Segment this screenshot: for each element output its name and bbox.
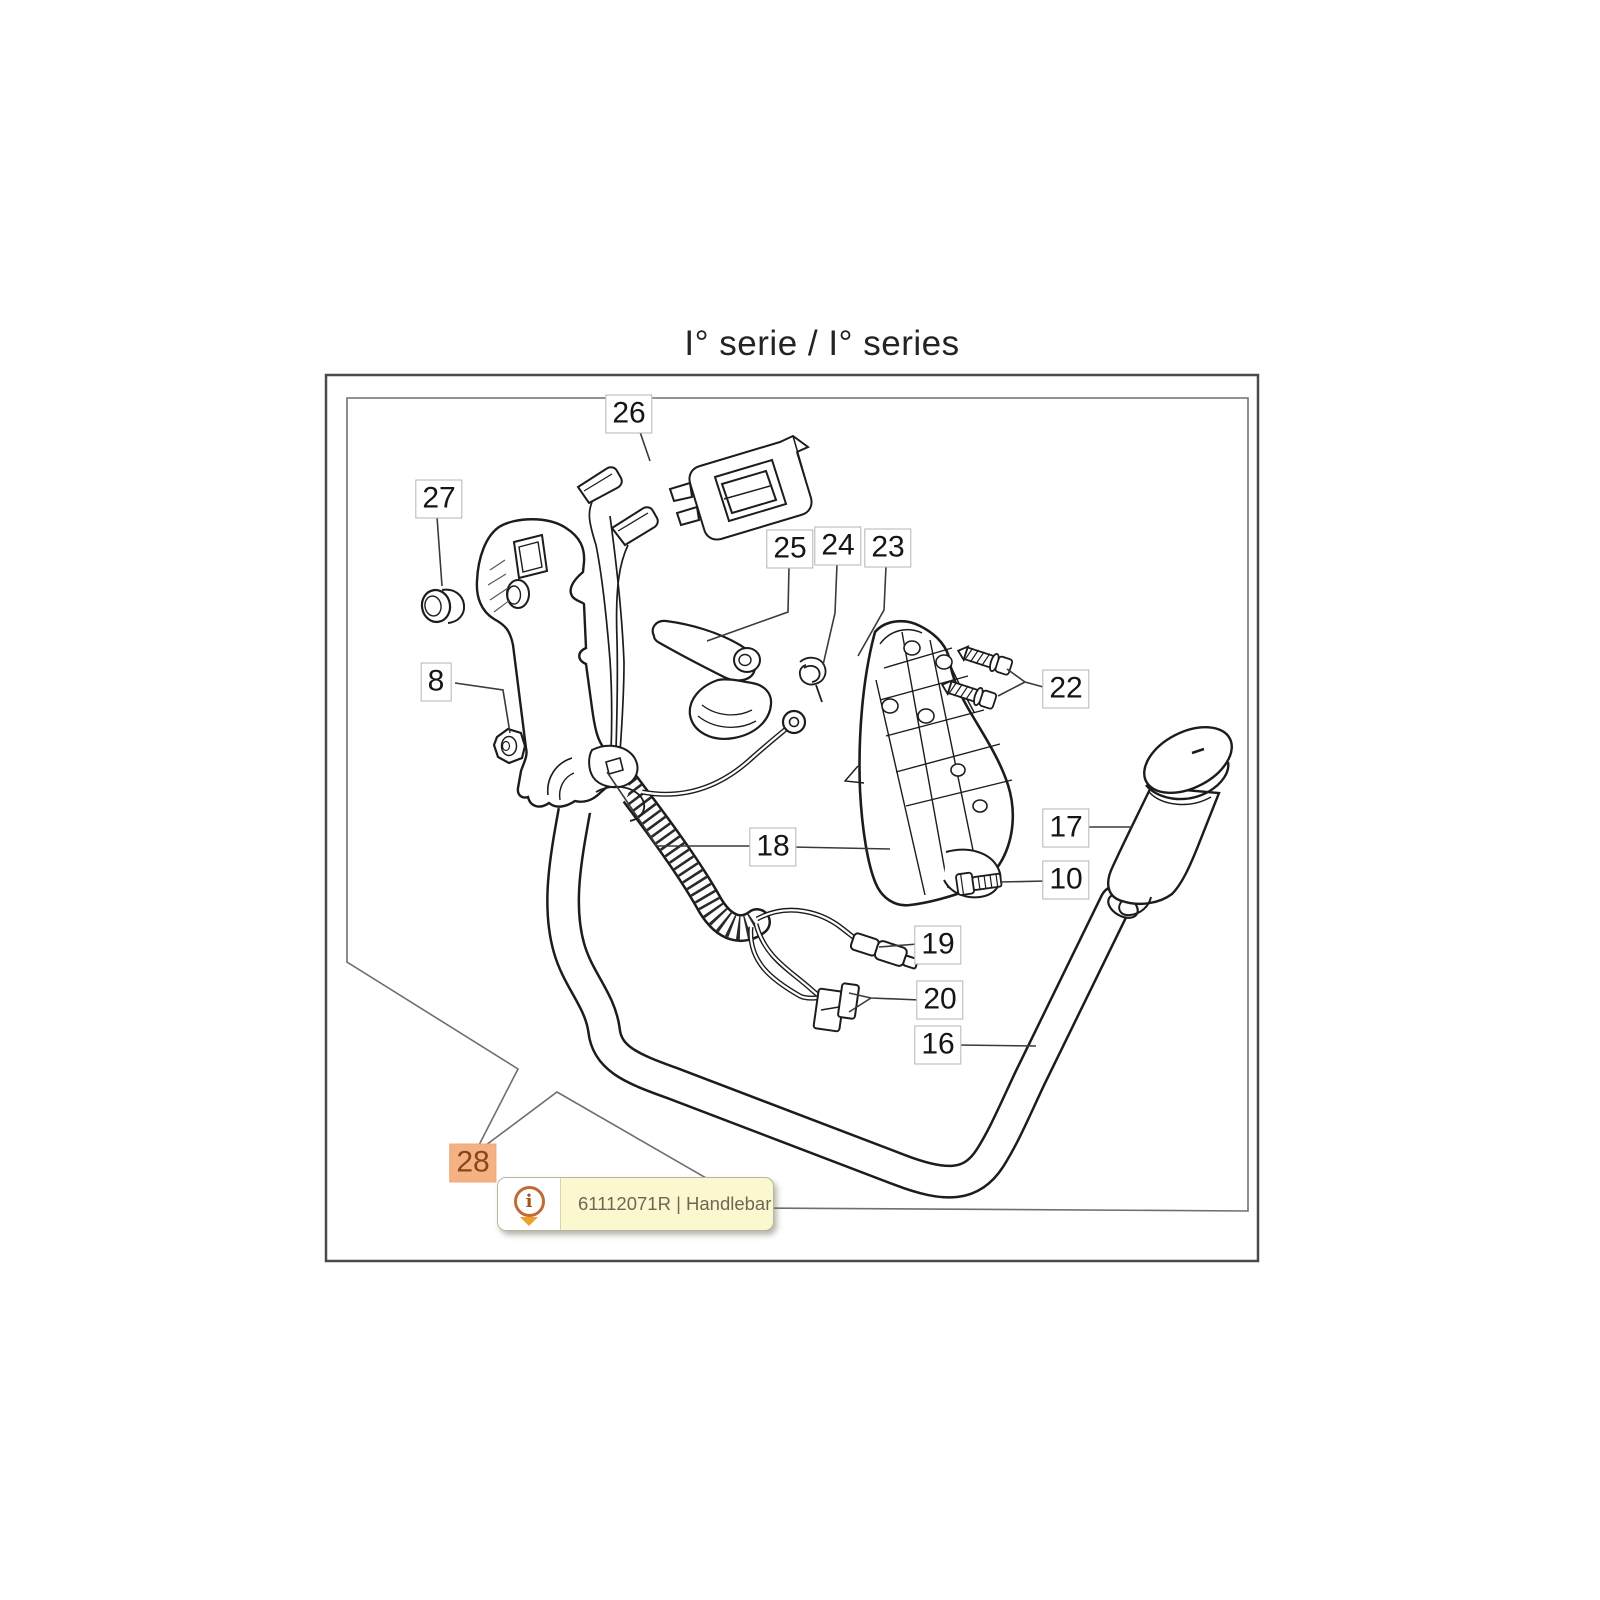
- part-label-27[interactable]: 27: [415, 480, 462, 519]
- selected-part-outline: [347, 398, 1248, 1211]
- part-label-24[interactable]: 24: [814, 527, 861, 566]
- cap-part[interactable]: [419, 588, 464, 624]
- part-tooltip: i 61112071R | Handlebar: [497, 1177, 774, 1231]
- part-label-17[interactable]: 17: [1042, 809, 1089, 848]
- info-icon[interactable]: i: [514, 1186, 545, 1217]
- part-label-26[interactable]: 26: [605, 395, 652, 434]
- part-label-10[interactable]: 10: [1042, 861, 1089, 900]
- part-label-22[interactable]: 22: [1042, 670, 1089, 709]
- screw-1[interactable]: [955, 642, 1013, 676]
- spring[interactable]: [800, 658, 826, 702]
- diagram-line-art: [0, 0, 1600, 1600]
- inline-connector[interactable]: [850, 932, 918, 969]
- parts-diagram-page: I° serie / I° series: [0, 0, 1600, 1600]
- block-connectors[interactable]: [813, 983, 859, 1032]
- part-label-20[interactable]: 20: [916, 981, 963, 1020]
- part-label-19[interactable]: 19: [914, 926, 961, 965]
- part-label-28[interactable]: 28: [449, 1144, 496, 1183]
- part-label-18[interactable]: 18: [749, 828, 796, 867]
- info-arrow-icon: [520, 1217, 538, 1226]
- part-label-25[interactable]: 25: [766, 530, 813, 569]
- throttle-housing[interactable]: [477, 519, 644, 821]
- hex-nut[interactable]: [494, 729, 525, 763]
- tooltip-part-text: 61112071R | Handlebar: [561, 1178, 773, 1230]
- part-label-8[interactable]: 8: [421, 663, 452, 702]
- part-label-16[interactable]: 16: [914, 1026, 961, 1065]
- stop-switch[interactable]: [670, 436, 812, 540]
- part-label-23[interactable]: 23: [864, 529, 911, 568]
- tooltip-icon-cell: i: [498, 1178, 561, 1230]
- grip-handle[interactable]: [1108, 714, 1242, 915]
